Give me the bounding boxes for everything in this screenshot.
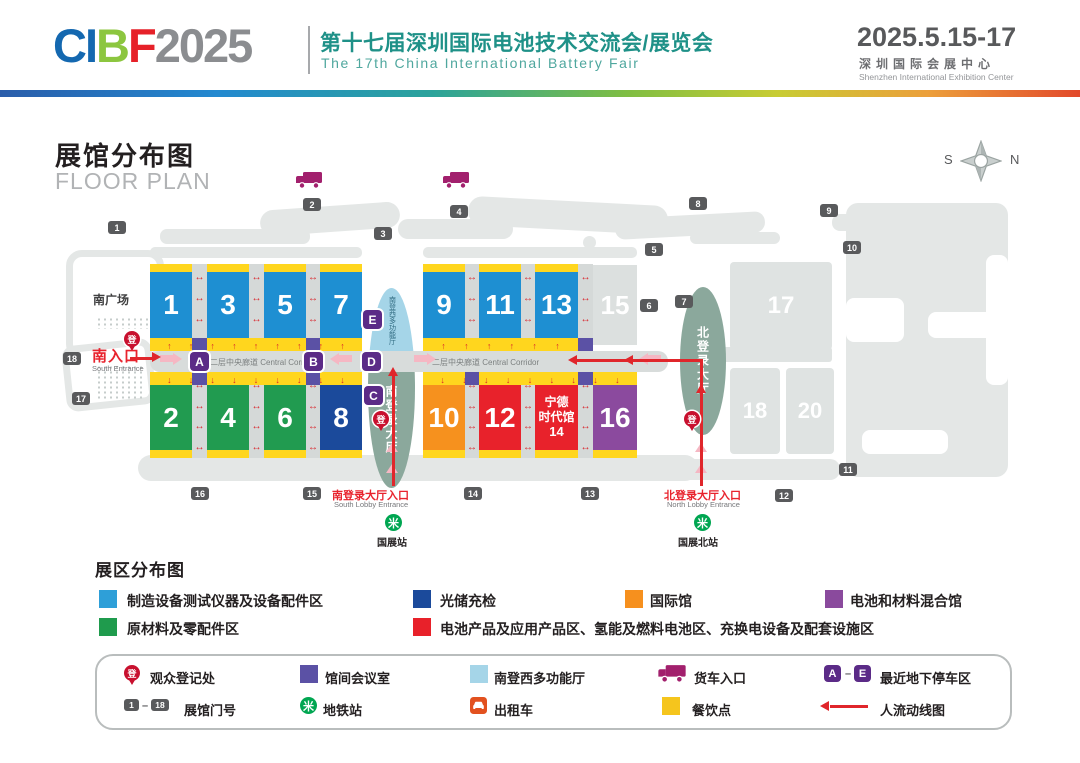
gate-13: 13 bbox=[581, 487, 599, 500]
fair-dates: 2025.5.15-17 bbox=[857, 22, 1016, 53]
compass-rose-icon bbox=[960, 140, 1002, 187]
gate-1-label: 1 bbox=[129, 700, 134, 710]
hall-17-number: 17 bbox=[768, 292, 795, 320]
hall-14-line2: 时代馆 bbox=[538, 410, 574, 424]
zone-swatch-battery bbox=[413, 618, 431, 636]
up-arrow-icon bbox=[167, 338, 172, 351]
hall-5: 5 bbox=[264, 272, 306, 338]
building-strip bbox=[423, 247, 637, 258]
bottom-walkway bbox=[138, 455, 698, 481]
meeting-room-block bbox=[306, 372, 320, 385]
left-right-arrow-icon bbox=[581, 309, 591, 327]
gate-15: 15 bbox=[303, 487, 321, 500]
gate-17-label: 17 bbox=[76, 394, 86, 404]
gate-12-label: 12 bbox=[779, 491, 789, 501]
gate-13-label: 13 bbox=[585, 489, 595, 499]
left-right-arrow-icon bbox=[195, 288, 205, 306]
up-arrow-icon bbox=[510, 338, 515, 351]
east-building-notch bbox=[986, 255, 1008, 385]
left-right-arrow-icon bbox=[523, 416, 533, 434]
zone-swatch-international bbox=[625, 590, 643, 608]
zone-swatch-mixed bbox=[825, 590, 843, 608]
left-right-arrow-icon bbox=[252, 288, 262, 306]
gate-15-label: 15 bbox=[307, 489, 317, 499]
flow-arrowhead bbox=[388, 367, 398, 376]
gate-10: 10 bbox=[843, 241, 861, 254]
parking-plate-d: D bbox=[362, 352, 381, 371]
compass-south-label: S bbox=[944, 152, 953, 167]
plan-title-en: FLOOR PLAN bbox=[55, 168, 211, 195]
left-right-arrow-icon bbox=[308, 416, 318, 434]
meeting-room-block bbox=[306, 338, 320, 351]
left-right-arrow-icon bbox=[252, 267, 262, 285]
legend-swatch-multi-hall bbox=[470, 665, 488, 683]
legend-gate-18: 18 bbox=[151, 699, 169, 711]
left-right-arrow-icon bbox=[581, 437, 591, 455]
fair-title-cn: 第十七届深圳国际电池技术交流会/展览会 bbox=[320, 27, 713, 57]
hall-2-number: 2 bbox=[163, 402, 179, 434]
zone-label-equipment: 制造设备测试仪器及设备配件区 bbox=[127, 591, 323, 611]
gate-16: 16 bbox=[191, 487, 209, 500]
hall-8-number: 8 bbox=[333, 402, 349, 434]
left-right-arrow-icon bbox=[252, 437, 262, 455]
left-right-arrow-icon bbox=[195, 416, 205, 434]
zones-legend-title: 展区分布图 bbox=[95, 556, 185, 581]
hall-2: 2 bbox=[150, 385, 192, 450]
hall-5-number: 5 bbox=[277, 289, 293, 321]
zone-label-battery: 电池产品及应用产品区、氢能及燃料电池区、充换电设备及配套设施区 bbox=[440, 619, 874, 639]
registration-pin-legend: 登 bbox=[124, 665, 140, 681]
left-right-arrow-icon bbox=[467, 396, 477, 414]
legend-label-parking: 最近地下停车区 bbox=[880, 668, 971, 687]
metro-south-label: 国展站 bbox=[377, 534, 407, 549]
left-right-arrow-icon bbox=[195, 309, 205, 327]
left-right-arrow-icon bbox=[581, 396, 591, 414]
hall-18-number: 18 bbox=[743, 398, 767, 424]
gate-1: 1 bbox=[108, 221, 126, 234]
gate-6-label: 6 bbox=[646, 301, 651, 311]
hall-11: 11 bbox=[479, 272, 521, 338]
hall-17: 17 bbox=[730, 262, 832, 350]
registration-pin-label: 登 bbox=[376, 413, 385, 426]
corridor-label-west: 二层中央廊道 Central Corridor bbox=[210, 357, 317, 368]
plate-a-label: A bbox=[829, 668, 837, 680]
logo-letter-i: I bbox=[85, 19, 96, 72]
zone-label-storage: 光储充检 bbox=[440, 591, 496, 611]
hall-15-number: 15 bbox=[601, 290, 630, 321]
fair-title-en: The 17th China International Battery Fai… bbox=[321, 55, 640, 71]
left-right-arrow-icon bbox=[523, 288, 533, 306]
hall-1: 1 bbox=[150, 272, 192, 338]
dining-strip bbox=[423, 372, 637, 385]
legend-label-registration: 观众登记处 bbox=[150, 668, 215, 687]
hall-3: 3 bbox=[207, 272, 249, 338]
left-right-arrow-icon bbox=[195, 437, 205, 455]
logo-year: 2025 bbox=[155, 19, 252, 72]
hall-6: 6 bbox=[264, 385, 306, 450]
zone-label-materials: 原材料及零配件区 bbox=[127, 619, 239, 639]
dining-strip bbox=[150, 338, 362, 351]
pink-arrow bbox=[414, 355, 427, 362]
logo-letter-f: F bbox=[128, 19, 155, 72]
down-arrow-icon bbox=[167, 372, 172, 385]
legend-plate-e: E bbox=[854, 665, 871, 682]
down-arrow-icon bbox=[593, 372, 598, 385]
hall-15: 15 bbox=[593, 265, 637, 345]
flow-legend-line bbox=[830, 705, 868, 708]
flow-line bbox=[700, 361, 703, 486]
plate-b-label: B bbox=[309, 355, 318, 369]
meeting-room-block bbox=[578, 372, 593, 385]
hall-4: 4 bbox=[207, 385, 249, 450]
hall-14-catl: 宁德 时代馆 14 bbox=[535, 385, 578, 450]
left-right-arrow-icon bbox=[581, 288, 591, 306]
floor-plan-poster: CIBF2025 第十七届深圳国际电池技术交流会/展览会 The 17th Ch… bbox=[0, 0, 1080, 763]
left-right-arrow-icon bbox=[308, 309, 318, 327]
up-arrow-icon bbox=[487, 338, 492, 351]
meeting-room-block bbox=[465, 372, 479, 385]
gate-5: 5 bbox=[645, 243, 663, 256]
left-right-arrow-icon bbox=[467, 437, 477, 455]
up-arrow-icon bbox=[232, 338, 237, 351]
down-arrow-icon bbox=[232, 372, 237, 385]
up-arrow-icon bbox=[464, 338, 469, 351]
left-right-arrow-icon bbox=[195, 267, 205, 285]
left-right-arrow-icon bbox=[523, 267, 533, 285]
south-entrance-label-en: South Entrance bbox=[92, 364, 144, 373]
gate-11: 11 bbox=[839, 463, 857, 476]
gate-2-label: 2 bbox=[309, 200, 314, 210]
legend-plate-a: A bbox=[824, 665, 841, 682]
gate-16-label: 16 bbox=[195, 489, 205, 499]
header: CIBF2025 第十七届深圳国际电池技术交流会/展览会 The 17th Ch… bbox=[0, 0, 1080, 90]
legend-gate-1: 1 bbox=[124, 699, 139, 711]
down-arrow-icon bbox=[550, 372, 555, 385]
venue-cn: 深圳国际会展中心 bbox=[859, 55, 995, 72]
building-strip bbox=[150, 247, 362, 258]
gate-18-label: 18 bbox=[67, 354, 77, 364]
legend-label-gate-number: 展馆门号 bbox=[184, 700, 236, 719]
compass-north-label: N bbox=[1010, 152, 1019, 167]
south-multi-hall-label: 南登西多功能厅 bbox=[387, 296, 397, 345]
zone-swatch-storage bbox=[413, 590, 431, 608]
parking-dots bbox=[96, 317, 148, 329]
down-arrow-icon bbox=[506, 372, 511, 385]
hall-16: 16 bbox=[593, 385, 637, 450]
left-right-arrow-icon bbox=[581, 267, 591, 285]
flow-arrowhead bbox=[624, 355, 633, 365]
left-right-arrow-icon bbox=[308, 288, 318, 306]
plate-e-label: E bbox=[859, 668, 866, 680]
legend-label-taxi: 出租车 bbox=[494, 700, 533, 719]
south-lobby-entrance-label-en: South Lobby Entrance bbox=[334, 500, 408, 509]
left-right-arrow-icon bbox=[581, 416, 591, 434]
venue-en: Shenzhen International Exhibition Center bbox=[859, 72, 1014, 82]
parking-plate-a: A bbox=[190, 352, 209, 371]
gate-6: 6 bbox=[640, 299, 658, 312]
up-arrow-icon bbox=[254, 338, 259, 351]
gate-3-label: 3 bbox=[380, 229, 385, 239]
gate-8-label: 8 bbox=[695, 199, 700, 209]
metro-station-icon bbox=[694, 514, 711, 531]
down-arrow-icon bbox=[297, 372, 302, 385]
left-right-arrow-icon bbox=[523, 309, 533, 327]
cibf-logo: CIBF2025 bbox=[53, 18, 251, 73]
registration-pin-label: 登 bbox=[127, 333, 136, 346]
legend-label-flow: 人流动线图 bbox=[880, 700, 945, 719]
header-gradient-bar bbox=[0, 90, 1080, 97]
compass: S N bbox=[944, 140, 1028, 184]
gate-14: 14 bbox=[464, 487, 482, 500]
left-right-arrow-icon bbox=[252, 416, 262, 434]
hall-7-number: 7 bbox=[333, 289, 349, 321]
down-arrow-icon bbox=[340, 372, 345, 385]
corridor-label-east: 二层中央廊道 Central Corridor bbox=[432, 357, 539, 368]
down-arrow-icon bbox=[615, 372, 620, 385]
gate-4-label: 4 bbox=[456, 207, 461, 217]
header-divider bbox=[308, 26, 310, 74]
truck-icon bbox=[294, 170, 324, 195]
gate-11-label: 11 bbox=[843, 465, 853, 475]
left-right-arrow-icon bbox=[308, 396, 318, 414]
down-arrow-icon bbox=[440, 372, 445, 385]
up-arrow-icon bbox=[555, 338, 560, 351]
truck-icon bbox=[441, 170, 471, 195]
logo-letter-c: C bbox=[53, 19, 85, 72]
hall-11-number: 11 bbox=[485, 289, 515, 321]
registration-pin-label: 登 bbox=[127, 667, 136, 680]
metro-north-label: 国展北站 bbox=[678, 534, 718, 549]
hall-7: 7 bbox=[320, 272, 362, 338]
meeting-room-block bbox=[192, 338, 207, 351]
zone-swatch-equipment bbox=[99, 590, 117, 608]
flow-arrowhead bbox=[568, 355, 577, 365]
taxi-icon-legend bbox=[470, 697, 487, 719]
flow-legend-arrowhead bbox=[820, 701, 829, 711]
gate-2: 2 bbox=[303, 198, 321, 211]
legend-swatch-meeting bbox=[300, 665, 318, 683]
truck-icon-legend bbox=[656, 663, 688, 689]
gate-7-label: 7 bbox=[681, 297, 686, 307]
hall-16-number: 16 bbox=[599, 402, 630, 434]
hall-12-number: 12 bbox=[484, 402, 515, 434]
left-right-arrow-icon bbox=[308, 267, 318, 285]
metro-station-icon bbox=[385, 514, 402, 531]
down-arrow-icon bbox=[275, 372, 280, 385]
logo-letter-b: B bbox=[96, 19, 128, 72]
registration-pin-label: 登 bbox=[687, 413, 696, 426]
hall-9: 9 bbox=[423, 272, 465, 338]
legend-label-meeting: 馆间会议室 bbox=[325, 668, 390, 687]
down-arrow-icon bbox=[484, 372, 489, 385]
gate-18: 18 bbox=[63, 352, 81, 365]
hall-8: 8 bbox=[320, 385, 362, 450]
up-arrow-icon bbox=[532, 338, 537, 351]
hall-13-number: 13 bbox=[541, 289, 572, 321]
gate-18-label: 18 bbox=[155, 700, 164, 710]
gate-4: 4 bbox=[450, 205, 468, 218]
hall-12: 12 bbox=[479, 385, 521, 450]
legend-swatch-dining bbox=[662, 697, 680, 715]
gate-7: 7 bbox=[675, 295, 693, 308]
up-arrow-icon bbox=[210, 338, 215, 351]
left-right-arrow-icon bbox=[523, 396, 533, 414]
down-arrow-icon bbox=[571, 372, 576, 385]
zone-label-mixed: 电池和材料混合馆 bbox=[850, 591, 962, 611]
flow-arrowhead bbox=[152, 352, 161, 362]
east-building-notch bbox=[862, 430, 948, 454]
hall-18: 18 bbox=[730, 368, 780, 454]
up-arrow-icon bbox=[275, 338, 280, 351]
left-right-arrow-icon bbox=[252, 309, 262, 327]
plate-d-label: D bbox=[367, 355, 376, 369]
left-right-arrow-icon bbox=[308, 437, 318, 455]
zone-swatch-materials bbox=[99, 618, 117, 636]
left-right-arrow-icon bbox=[467, 309, 477, 327]
legend-label-truck: 货车入口 bbox=[694, 668, 746, 687]
up-arrow-icon bbox=[297, 338, 302, 351]
hall-20: 20 bbox=[786, 368, 834, 454]
hall-20-number: 20 bbox=[798, 398, 822, 424]
left-right-arrow-icon bbox=[467, 267, 477, 285]
bottom-walkway bbox=[645, 459, 840, 480]
registration-pin: 登 bbox=[684, 411, 700, 427]
down-arrow-icon bbox=[254, 372, 259, 385]
hall-10-number: 10 bbox=[428, 402, 459, 434]
flow-line bbox=[577, 359, 703, 362]
left-right-arrow-icon bbox=[467, 416, 477, 434]
gate-12: 12 bbox=[775, 489, 793, 502]
hall-13: 13 bbox=[535, 272, 578, 338]
building-outline bbox=[690, 232, 780, 244]
dining-strip bbox=[150, 372, 362, 385]
dining-strip bbox=[423, 338, 578, 351]
down-arrow-icon bbox=[528, 372, 533, 385]
gate-5-label: 5 bbox=[651, 245, 656, 255]
gate-3: 3 bbox=[374, 227, 392, 240]
parking-plate-e: E bbox=[363, 310, 382, 329]
flow-arrowhead bbox=[696, 384, 706, 393]
plate-a-label: A bbox=[195, 355, 204, 369]
registration-pin: 登 bbox=[373, 411, 389, 427]
up-arrow-icon bbox=[441, 338, 446, 351]
plate-c-label: C bbox=[369, 389, 378, 403]
hall-3-number: 3 bbox=[220, 289, 236, 321]
meeting-room-block bbox=[578, 338, 593, 351]
left-right-arrow-icon bbox=[467, 288, 477, 306]
gate-1-label: 1 bbox=[114, 223, 119, 233]
legend-label-metro: 地铁站 bbox=[323, 700, 362, 719]
parking-plate-c: C bbox=[364, 386, 383, 405]
south-plaza-label: 南广场 bbox=[93, 291, 129, 308]
hall-6-number: 6 bbox=[277, 402, 293, 434]
gate-9-label: 9 bbox=[826, 206, 831, 216]
legend-label-multi-hall: 南登西多功能厅 bbox=[494, 668, 585, 687]
zone-label-international: 国际馆 bbox=[650, 591, 692, 611]
legend-label-dining: 餐饮点 bbox=[692, 700, 731, 719]
down-arrow-icon bbox=[210, 372, 215, 385]
hall-1-number: 1 bbox=[163, 289, 179, 321]
left-right-arrow-icon bbox=[252, 396, 262, 414]
dining-strip bbox=[423, 264, 578, 272]
pink-arrow bbox=[339, 355, 352, 362]
hall-9-number: 9 bbox=[436, 289, 452, 321]
gate-14-label: 14 bbox=[468, 489, 478, 499]
metro-icon-legend bbox=[300, 697, 317, 714]
up-arrow-icon bbox=[340, 338, 345, 351]
meeting-room-block bbox=[192, 372, 207, 385]
gate-17: 17 bbox=[72, 392, 90, 405]
hall-4-number: 4 bbox=[220, 402, 236, 434]
hall-10: 10 bbox=[423, 385, 465, 450]
gate-10-label: 10 bbox=[847, 243, 857, 253]
gate-8: 8 bbox=[689, 197, 707, 210]
hall-14-number: 14 bbox=[549, 424, 563, 440]
east-building-notch bbox=[846, 298, 904, 342]
hall-14-line1: 宁德 bbox=[544, 395, 568, 409]
gate-9: 9 bbox=[820, 204, 838, 217]
south-entrance-label-cn: 南入口 bbox=[92, 345, 140, 366]
range-separator: – bbox=[142, 700, 148, 712]
left-right-arrow-icon bbox=[195, 396, 205, 414]
parking-plate-b: B bbox=[304, 352, 323, 371]
left-right-arrow-icon bbox=[523, 437, 533, 455]
plate-e-label: E bbox=[368, 313, 376, 327]
range-separator: – bbox=[845, 668, 851, 680]
pink-arrow bbox=[160, 355, 173, 362]
flow-line bbox=[392, 375, 395, 486]
north-lobby-entrance-label-en: North Lobby Entrance bbox=[667, 500, 740, 509]
